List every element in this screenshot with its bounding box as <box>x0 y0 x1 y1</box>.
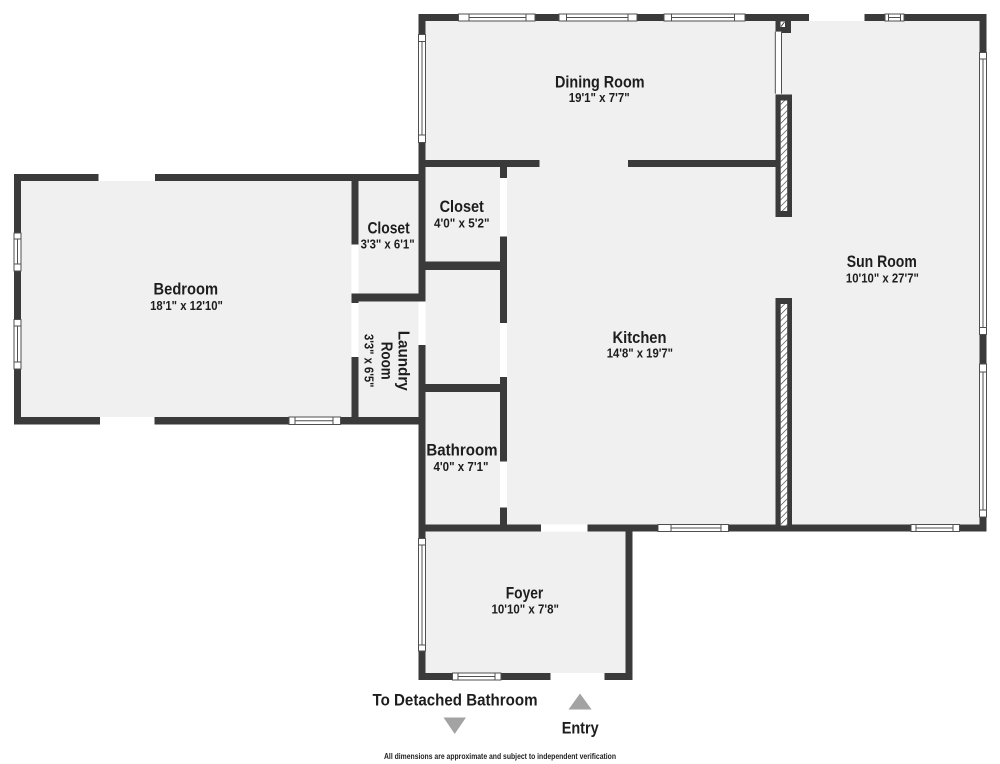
svg-text:Closet: Closet <box>440 198 485 216</box>
svg-text:4'0" x 5'2": 4'0" x 5'2" <box>434 217 490 231</box>
svg-text:All dimensions are approximate: All dimensions are approximate and subje… <box>384 751 616 761</box>
svg-text:To Detached Bathroom: To Detached Bathroom <box>373 692 538 710</box>
svg-text:Laundry: Laundry <box>395 331 412 391</box>
svg-text:4'0" x 7'1": 4'0" x 7'1" <box>434 460 489 474</box>
svg-text:10'10" x 7'8": 10'10" x 7'8" <box>491 603 559 617</box>
svg-text:18'1" x 12'10": 18'1" x 12'10" <box>150 299 223 313</box>
svg-text:Sun Room: Sun Room <box>847 253 917 271</box>
svg-text:Bedroom: Bedroom <box>154 281 219 299</box>
svg-text:Dining Room: Dining Room <box>555 73 645 91</box>
svg-text:3'3" x 6'1": 3'3" x 6'1" <box>361 237 415 251</box>
svg-text:14'8" x 19'7": 14'8" x 19'7" <box>607 347 673 361</box>
svg-text:Entry: Entry <box>562 720 600 738</box>
svg-text:Foyer: Foyer <box>506 585 544 603</box>
svg-text:Kitchen: Kitchen <box>613 329 667 347</box>
svg-text:19'1" x 7'7": 19'1" x 7'7" <box>569 91 630 105</box>
svg-text:Room: Room <box>378 342 395 380</box>
svg-text:Closet: Closet <box>367 219 410 237</box>
svg-text:3'3" x 6'5": 3'3" x 6'5" <box>362 334 376 388</box>
svg-text:Bathroom: Bathroom <box>426 442 497 460</box>
svg-text:10'10" x 27'7": 10'10" x 27'7" <box>846 272 919 286</box>
